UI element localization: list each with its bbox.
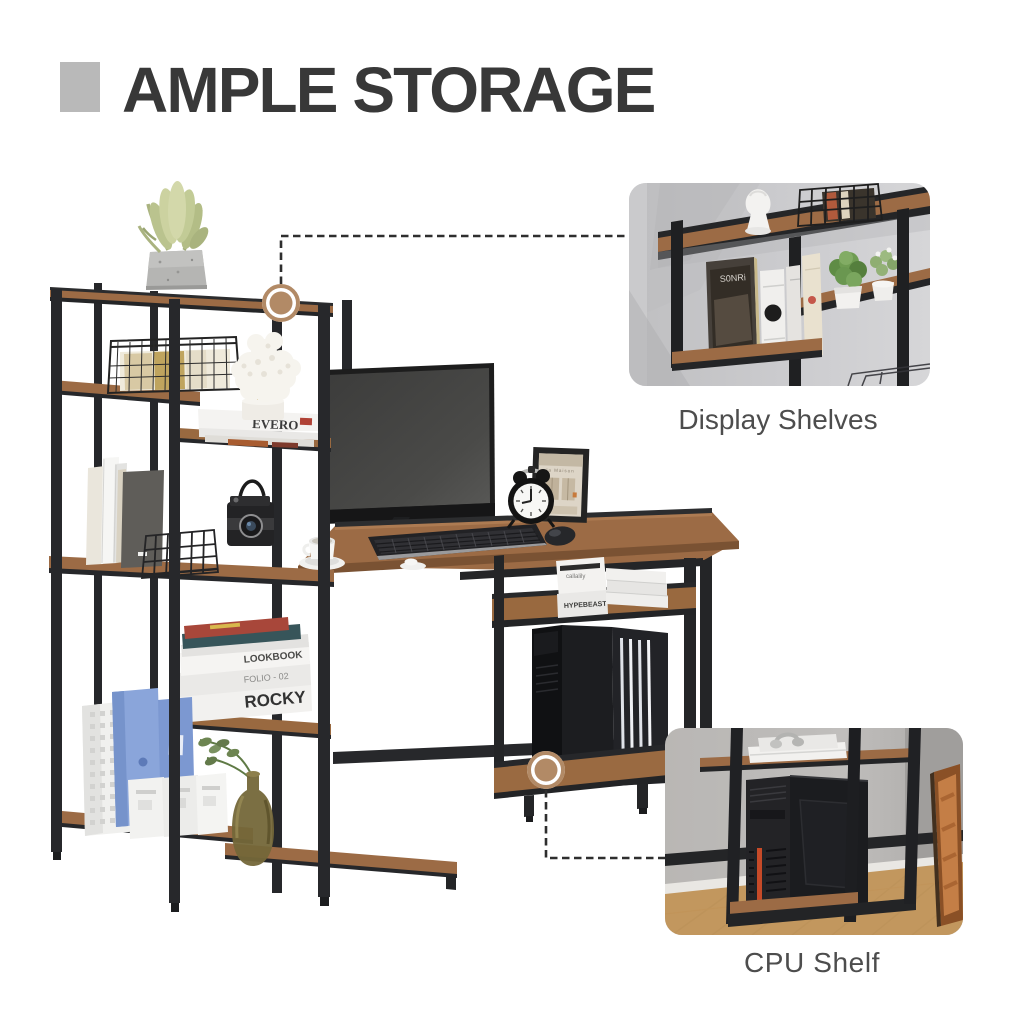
svg-text:CPU Shelf: CPU Shelf (744, 947, 880, 978)
svg-text:la Maison: la Maison (546, 467, 574, 473)
svg-text:AMPLE STORAGE: AMPLE STORAGE (122, 54, 655, 126)
svg-text:Display Shelves: Display Shelves (678, 404, 877, 435)
svg-text:callalily: callalily (566, 574, 585, 580)
svg-text:S0NRi: S0NRi (719, 272, 746, 284)
